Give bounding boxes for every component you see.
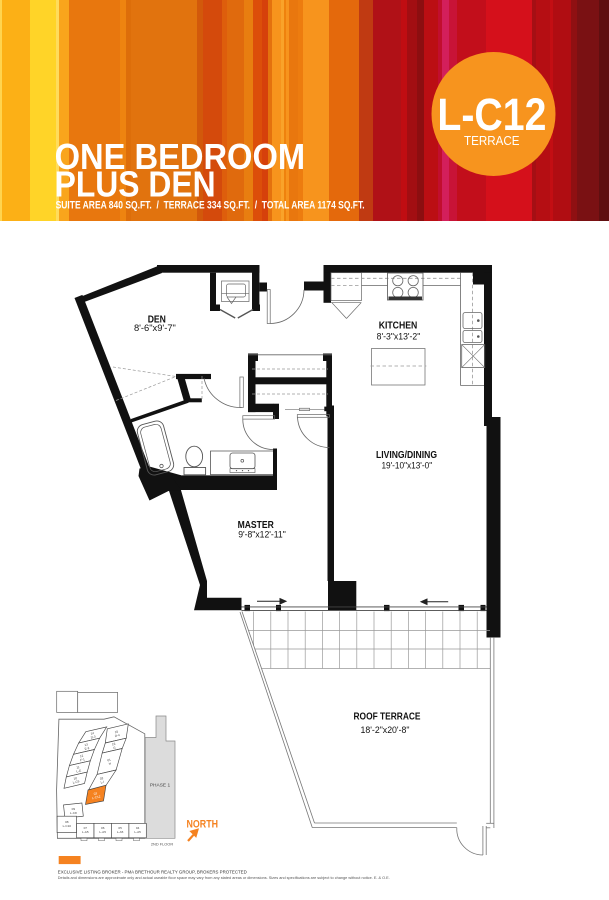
svg-text:8'-6"x9'-7": 8'-6"x9'-7" bbox=[134, 322, 176, 333]
svg-text:SUITE AREA 840 SQ.FT. / TERR: SUITE AREA 840 SQ.FT. / TERRACE 334 SQ.F… bbox=[56, 200, 365, 212]
svg-text:2ND FLOOR: 2ND FLOOR bbox=[151, 842, 173, 847]
svg-text:19'-10"x13'-0": 19'-10"x13'-0" bbox=[381, 459, 432, 470]
svg-text:PHASE 1: PHASE 1 bbox=[150, 783, 171, 789]
svg-text:Details and dimensions are app: Details and dimensions are approximate o… bbox=[58, 876, 390, 880]
svg-text:ROOF TERRACE: ROOF TERRACE bbox=[354, 712, 421, 723]
svg-text:L-C10: L-C10 bbox=[63, 824, 72, 828]
svg-text:L-A5: L-A5 bbox=[82, 830, 89, 834]
svg-text:L-A5: L-A5 bbox=[134, 830, 141, 834]
svg-text:NORTH: NORTH bbox=[187, 819, 219, 831]
svg-text:PLUS DEN: PLUS DEN bbox=[55, 163, 216, 204]
svg-text:L-C12: L-C12 bbox=[437, 89, 546, 140]
svg-text:L-C8: L-C8 bbox=[70, 811, 77, 815]
svg-text:EXCLUSIVE LISTING BROKER - PMA: EXCLUSIVE LISTING BROKER - PMA BRETHOUR … bbox=[58, 870, 248, 875]
svg-text:9'-8"x12'-11": 9'-8"x12'-11" bbox=[238, 529, 286, 540]
svg-text:TERRACE: TERRACE bbox=[464, 134, 520, 148]
svg-text:L-A5: L-A5 bbox=[117, 830, 124, 834]
svg-text:18'-2"x20'-8": 18'-2"x20'-8" bbox=[361, 724, 410, 735]
svg-text:L-A5: L-A5 bbox=[99, 830, 106, 834]
svg-text:8'-3"x13'-2": 8'-3"x13'-2" bbox=[377, 331, 421, 342]
